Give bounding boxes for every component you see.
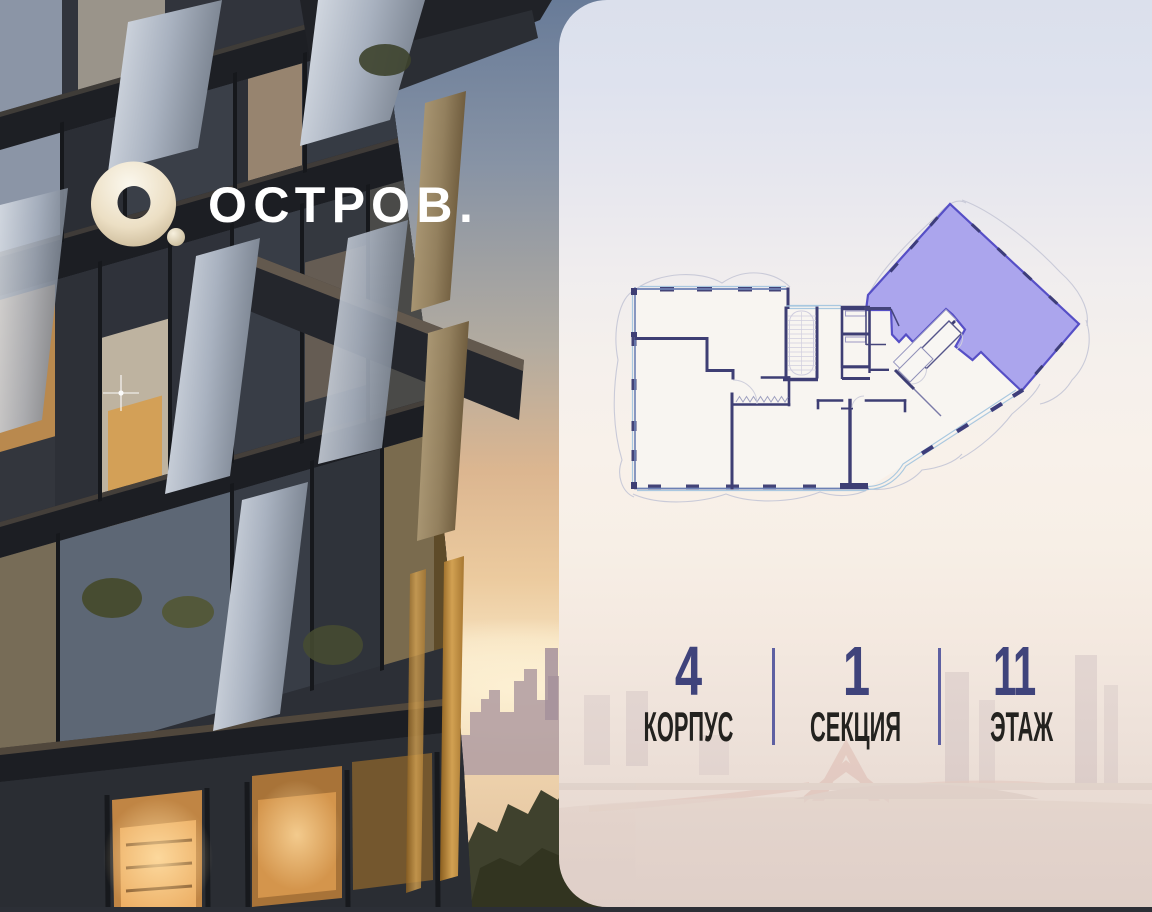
svg-text:ОСТРОВ.: ОСТРОВ.	[208, 177, 479, 233]
